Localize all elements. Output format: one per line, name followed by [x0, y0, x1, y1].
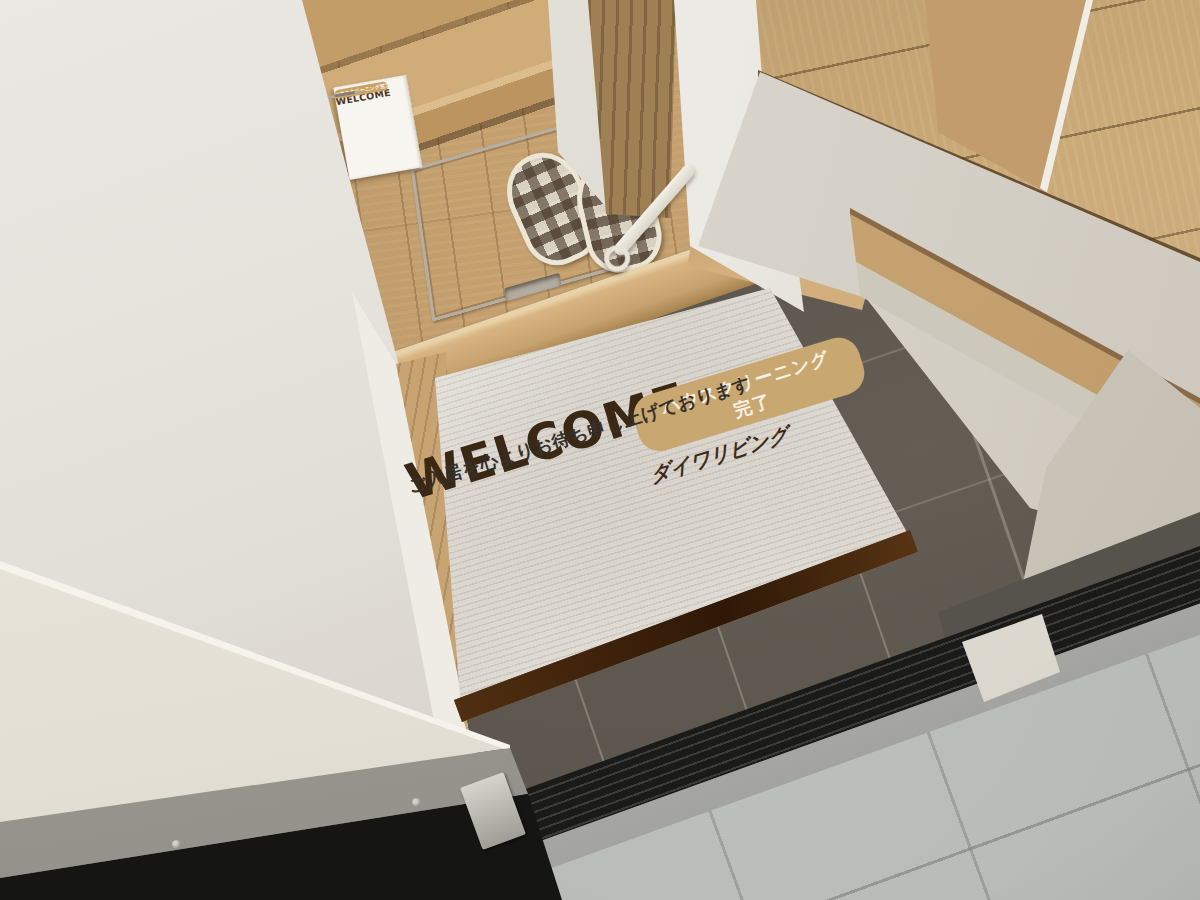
welcome-mat-print-area: WELCOME ハウスクリーニング完了 ご入居を心よりお待ち申し上げております …	[435, 288, 918, 722]
entryway-photo: WELCOME ハウスクリーニング完了 WELCOME ハウスクリーニ	[0, 0, 1200, 900]
welcome-mat-print: WELCOME ハウスクリーニング完了 ご入居を心よりお待ち申し上げております …	[400, 323, 855, 479]
door-screw	[412, 798, 421, 807]
door-screw	[172, 840, 181, 849]
